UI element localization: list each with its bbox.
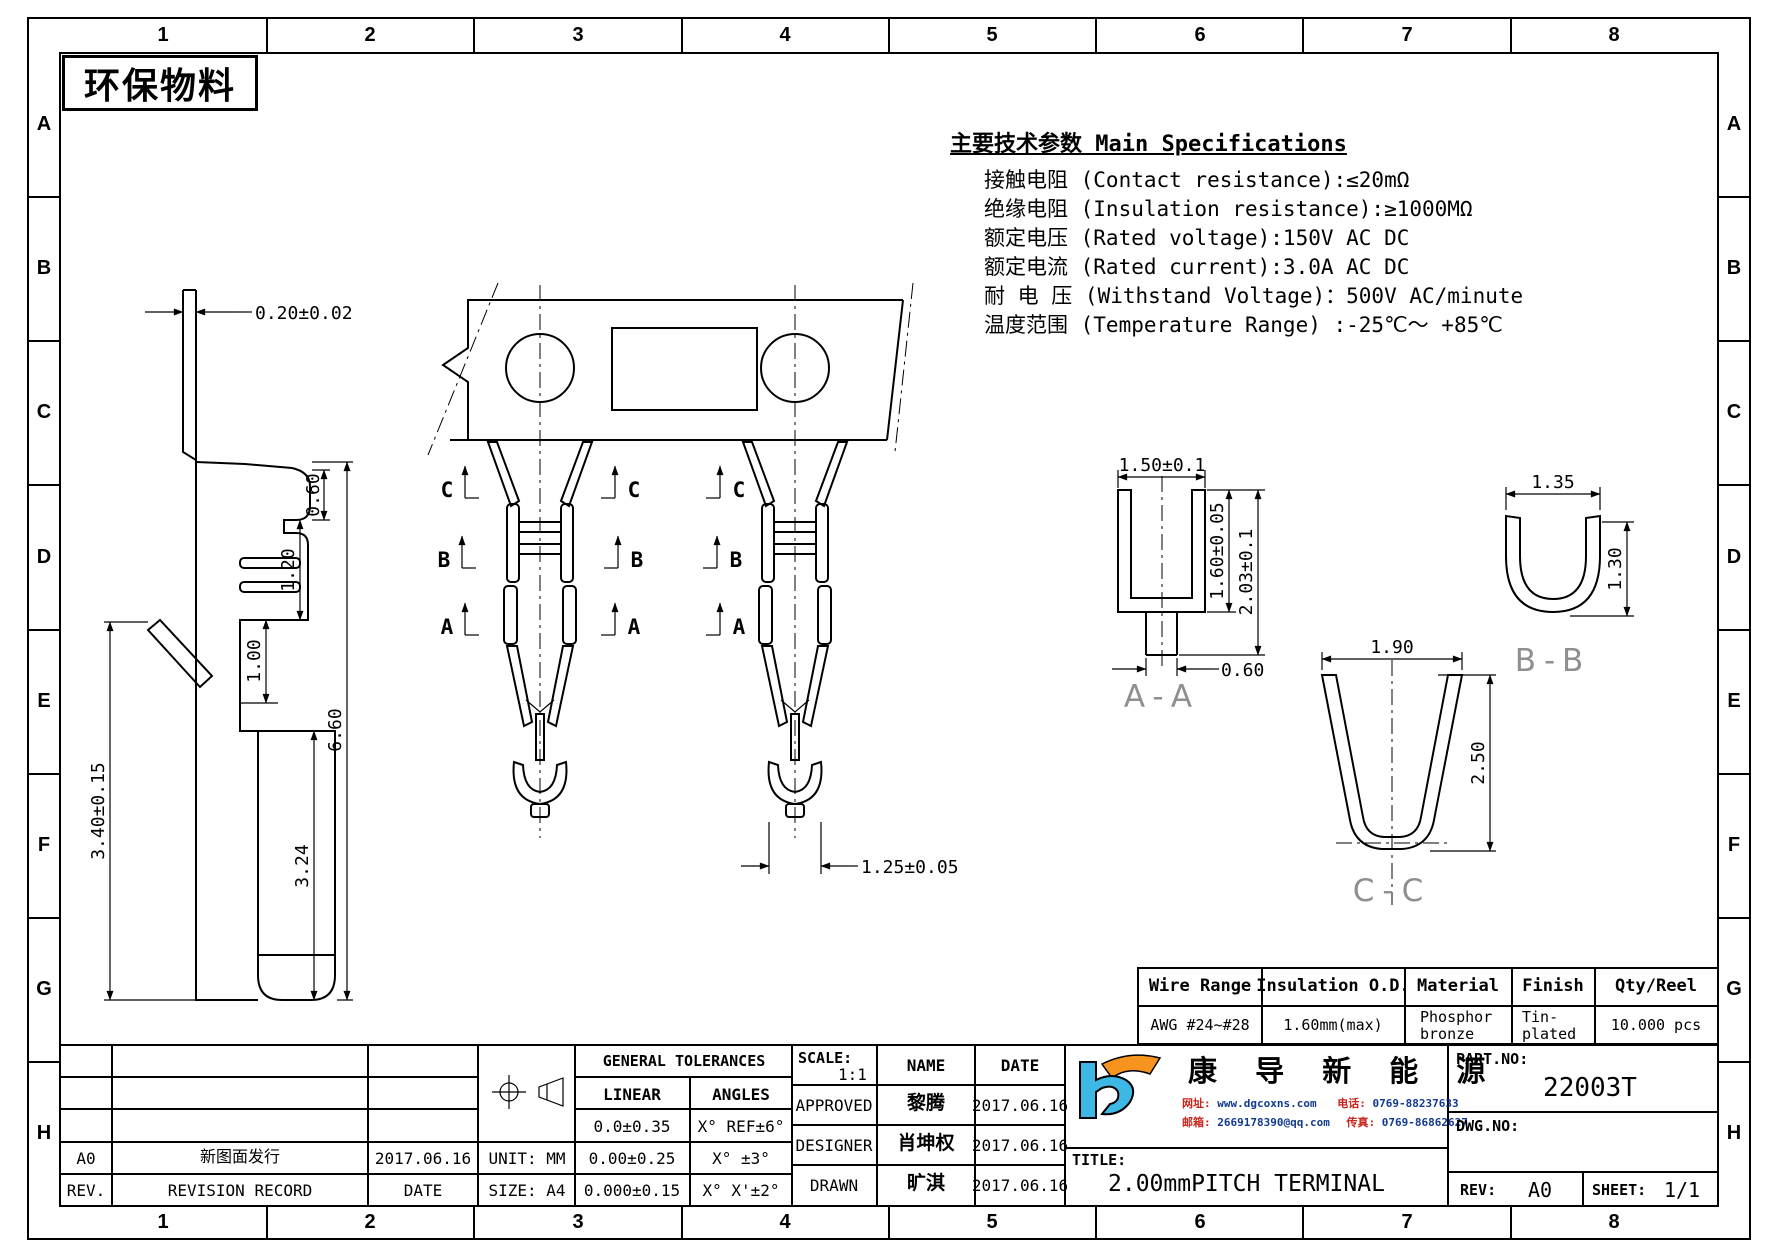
unit-label: UNIT: MM bbox=[488, 1150, 565, 1168]
zone-col-7-bottom: 7 bbox=[1401, 1211, 1412, 1234]
dim-pitch: 1.25±0.05 bbox=[861, 857, 959, 878]
tolerance-angles-2: X° ±3° bbox=[712, 1150, 770, 1168]
carrier-strip-outline bbox=[428, 283, 913, 455]
date-column-label: DATE bbox=[1001, 1057, 1040, 1075]
part-no-label: PART.NO: bbox=[1456, 1051, 1528, 1068]
zone-row-a-right: A bbox=[1727, 113, 1741, 136]
website-value: www.dgcoxns.com bbox=[1217, 1097, 1316, 1110]
side-view-drawing: 0.20±0.02 0.60 1.20 6.60 3.24 1.00 3.40±… bbox=[90, 255, 370, 1025]
zone-row-c-left: C bbox=[37, 401, 51, 424]
designer-label: DESIGNER bbox=[795, 1137, 872, 1155]
zone-col-2-bottom: 2 bbox=[364, 1211, 375, 1234]
projection-symbol-icon bbox=[487, 1068, 569, 1116]
specs-title: 主要技术参数 Main Specifications bbox=[950, 126, 1523, 158]
company-name: 康 导 新 能 源 bbox=[1188, 1056, 1499, 1088]
rev-value: A0 bbox=[1528, 1179, 1552, 1201]
spec-line: 绝缘电阻 (Insulation resistance):≥1000MΩ bbox=[984, 193, 1523, 222]
pitch-dimension: 1.25±0.05 bbox=[741, 822, 959, 878]
table-cell-finish-line1: Tin- bbox=[1522, 1009, 1558, 1026]
zone-row-h-left: H bbox=[37, 1122, 51, 1145]
scale-value: 1:1 bbox=[838, 1066, 867, 1084]
company-logo-icon bbox=[1072, 1050, 1172, 1122]
zone-row-f-left: F bbox=[38, 834, 50, 857]
dim-aa-total-height: 2.03±0.1 bbox=[1236, 529, 1257, 616]
terminal-left bbox=[488, 285, 592, 838]
section-bb-label: B-B bbox=[1515, 643, 1592, 679]
table-header-qty: Qty/Reel bbox=[1615, 977, 1697, 996]
dim-340: 3.40±0.15 bbox=[88, 762, 109, 860]
section-cut-markers: C B A C B A C B A bbox=[438, 466, 746, 639]
section-label-a: A bbox=[441, 615, 454, 639]
phone-label: 电话: bbox=[1337, 1097, 1366, 1110]
section-cc-label: C-C bbox=[1353, 873, 1431, 909]
approved-date: 2017.06.16 bbox=[972, 1097, 1068, 1115]
dim-bb-height: 1.30 bbox=[1605, 547, 1626, 590]
zone-row-e-right: E bbox=[1727, 690, 1740, 713]
tolerances-linear-label: LINEAR bbox=[603, 1086, 661, 1104]
section-label-b: B bbox=[438, 548, 451, 572]
tolerance-angles-1: X° REF±6° bbox=[698, 1118, 785, 1136]
sheet-value: 1/1 bbox=[1664, 1179, 1700, 1201]
revision-rev-label: REV. bbox=[67, 1182, 106, 1200]
table-cell-insulation: 1.60mm(max) bbox=[1283, 1017, 1382, 1034]
zone-col-7-top: 7 bbox=[1401, 24, 1412, 47]
tolerance-linear-2: 0.00±0.25 bbox=[589, 1150, 676, 1168]
dwg-no-label: DWG.NO: bbox=[1456, 1118, 1519, 1135]
zone-col-4-bottom: 4 bbox=[779, 1211, 790, 1234]
tolerance-linear-1: 0.0±0.35 bbox=[593, 1118, 670, 1136]
phone-value: 0769-88237633 bbox=[1372, 1097, 1458, 1110]
section-label-a: A bbox=[628, 615, 641, 639]
dim-aa-stem-width: 0.60 bbox=[1221, 660, 1264, 681]
fax-value: 0769-86862627 bbox=[1382, 1116, 1468, 1129]
table-cell-material-line2: bronze bbox=[1420, 1026, 1474, 1043]
dim-120: 1.20 bbox=[278, 548, 299, 591]
zone-row-d-left: D bbox=[37, 546, 51, 569]
zone-col-1-top: 1 bbox=[157, 24, 168, 47]
dim-pin-width: 0.20±0.02 bbox=[255, 303, 353, 324]
part-no-value: 22003T bbox=[1543, 1074, 1637, 1103]
drawn-date: 2017.06.16 bbox=[972, 1177, 1068, 1195]
zone-col-1-bottom: 1 bbox=[157, 1211, 168, 1234]
side-view-dimensions: 0.20±0.02 0.60 1.20 6.60 3.24 1.00 3.40±… bbox=[88, 303, 353, 1000]
section-aa-label: A-A bbox=[1124, 679, 1200, 715]
drawn-label: DRAWN bbox=[810, 1177, 858, 1195]
drawn-name: 旷淇 bbox=[907, 1173, 945, 1194]
section-aa-drawing: 1.50±0.1 1.60±0.05 2.03±0.1 0.60 A-A bbox=[1080, 440, 1280, 730]
section-label-c: C bbox=[733, 478, 746, 502]
zone-row-g-right: G bbox=[1726, 978, 1742, 1001]
zone-row-g-left: G bbox=[36, 978, 52, 1001]
zone-row-f-right: F bbox=[1728, 834, 1740, 857]
size-label: SIZE: A4 bbox=[488, 1182, 565, 1200]
designer-date: 2017.06.16 bbox=[972, 1137, 1068, 1155]
revision-record-label: REVISION RECORD bbox=[168, 1182, 313, 1200]
strip-view-drawing: C B A C B A C B A 1.25±0.05 bbox=[415, 275, 1075, 885]
section-cc-drawing: 1.90 2.50 C-C bbox=[1285, 640, 1515, 915]
section-label-b: B bbox=[730, 548, 743, 572]
company-contact-line2: 邮箱: 2669178390@qq.com 传真: 0769-86862627 bbox=[1182, 1117, 1468, 1129]
drawing-title: 2.00mmPITCH TERMINAL bbox=[1108, 1172, 1385, 1197]
website-label: 网址: bbox=[1182, 1097, 1211, 1110]
table-cell-wire-range: AWG #24~#28 bbox=[1150, 1017, 1249, 1034]
dim-aa-top-width: 1.50±0.1 bbox=[1119, 455, 1206, 476]
revision-record: 新图面发行 bbox=[200, 1148, 280, 1166]
designer-name: 肖坤权 bbox=[897, 1133, 954, 1154]
zone-row-a-left: A bbox=[37, 113, 51, 136]
zone-col-5-top: 5 bbox=[986, 24, 997, 47]
zone-row-h-right: H bbox=[1727, 1122, 1741, 1145]
zone-row-b-right: B bbox=[1727, 257, 1741, 280]
table-cell-material-line1: Phosphor bbox=[1420, 1009, 1492, 1026]
section-label-b: B bbox=[631, 548, 644, 572]
dim-cc-height: 2.50 bbox=[1468, 741, 1489, 784]
title-label: TITLE: bbox=[1072, 1152, 1126, 1169]
table-header-material: Material bbox=[1417, 977, 1499, 996]
table-header-wire-range: Wire Range bbox=[1149, 977, 1251, 996]
table-cell-finish-line2: plated bbox=[1522, 1026, 1576, 1043]
approved-name: 黎腾 bbox=[907, 1093, 945, 1114]
revision-date: 2017.06.16 bbox=[375, 1150, 471, 1168]
sheet-label: SHEET: bbox=[1592, 1182, 1646, 1199]
section-label-c: C bbox=[441, 478, 454, 502]
tolerance-angles-3: X° X'±2° bbox=[702, 1182, 779, 1200]
tolerance-linear-3: 0.000±0.15 bbox=[584, 1182, 680, 1200]
rev-label: REV: bbox=[1460, 1182, 1496, 1199]
zone-col-3-top: 3 bbox=[572, 24, 583, 47]
approved-label: APPROVED bbox=[795, 1097, 872, 1115]
zone-col-8-bottom: 8 bbox=[1608, 1211, 1619, 1234]
zone-col-3-bottom: 3 bbox=[572, 1211, 583, 1234]
dim-660: 6.60 bbox=[325, 708, 346, 751]
tolerances-angles-label: ANGLES bbox=[712, 1086, 770, 1104]
zone-col-6-top: 6 bbox=[1194, 24, 1205, 47]
terminal-right bbox=[743, 285, 847, 838]
dim-cc-width: 1.90 bbox=[1370, 637, 1413, 658]
zone-row-d-right: D bbox=[1727, 546, 1741, 569]
table-header-finish: Finish bbox=[1522, 977, 1583, 996]
dim-100: 1.00 bbox=[244, 639, 265, 682]
drawing-sheet: 1 2 3 4 5 6 7 8 1 2 3 4 5 6 7 8 A B C D … bbox=[0, 0, 1778, 1257]
spec-line: 额定电压 (Rated voltage):150V AC DC bbox=[984, 222, 1523, 251]
email-label: 邮箱: bbox=[1182, 1116, 1211, 1129]
dim-060: 0.60 bbox=[303, 473, 324, 516]
dim-bb-width: 1.35 bbox=[1531, 472, 1574, 493]
dim-324: 3.24 bbox=[292, 844, 313, 887]
spec-line: 接触电阻 (Contact resistance):≤20mΩ bbox=[984, 164, 1523, 193]
tolerances-title: GENERAL TOLERANCES bbox=[603, 1053, 766, 1070]
email-value: 2669178390@qq.com bbox=[1217, 1116, 1330, 1129]
side-view-outline bbox=[148, 290, 335, 1000]
name-column-label: NAME bbox=[907, 1057, 946, 1075]
section-label-a: A bbox=[733, 615, 746, 639]
fax-label: 传真: bbox=[1346, 1116, 1375, 1129]
section-label-c: C bbox=[628, 478, 641, 502]
zone-col-6-bottom: 6 bbox=[1194, 1211, 1205, 1234]
zone-row-b-left: B bbox=[37, 257, 51, 280]
table-cell-qty: 10.000 pcs bbox=[1611, 1017, 1701, 1034]
revision-rev: A0 bbox=[76, 1150, 95, 1168]
company-contact-line1: 网址: www.dgcoxns.com 电话: 0769-88237633 bbox=[1182, 1098, 1459, 1110]
zone-row-e-left: E bbox=[37, 690, 50, 713]
eco-material-stamp: 环保物料 bbox=[62, 55, 258, 111]
zone-row-c-right: C bbox=[1727, 401, 1741, 424]
zone-col-8-top: 8 bbox=[1608, 24, 1619, 47]
dim-aa-inner-height: 1.60±0.05 bbox=[1207, 502, 1228, 600]
zone-col-4-top: 4 bbox=[779, 24, 790, 47]
revision-date-label: DATE bbox=[404, 1182, 443, 1200]
eco-material-stamp-text: 环保物料 bbox=[84, 57, 236, 109]
zone-col-5-bottom: 5 bbox=[986, 1211, 997, 1234]
table-header-insulation: Insulation O.D. bbox=[1256, 977, 1410, 996]
zone-col-2-top: 2 bbox=[364, 24, 375, 47]
